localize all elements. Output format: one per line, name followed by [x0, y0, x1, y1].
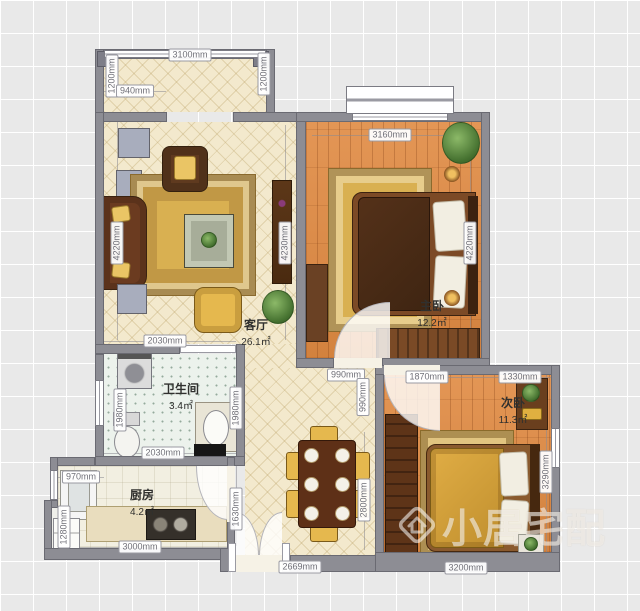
- wall: [296, 112, 306, 368]
- second-bed-quilt: [430, 448, 504, 548]
- side-table-icon: [117, 284, 147, 314]
- bay-window: [346, 86, 454, 114]
- room-label: 客厅26.1㎡: [241, 316, 270, 348]
- room-label: 次卧11.3㎡: [499, 394, 528, 426]
- plate-icon: [335, 506, 350, 521]
- dimension-label: 1980mm: [230, 386, 243, 429]
- dimension-label: 4230mm: [279, 221, 292, 264]
- wall: [296, 358, 334, 368]
- entry-opening: [236, 555, 282, 572]
- dimension-label: 970mm: [62, 471, 100, 484]
- room-area: 3.4㎡: [163, 397, 199, 412]
- cabinet-icon: [118, 128, 150, 158]
- wall: [95, 112, 167, 122]
- room-name: 次卧: [499, 394, 528, 411]
- room-name: 客厅: [241, 316, 270, 333]
- wall: [481, 112, 490, 374]
- room-area: 26.1㎡: [241, 333, 270, 348]
- dimension-label: 3000mm: [118, 541, 161, 554]
- dimension-label: 1630mm: [230, 487, 243, 530]
- dimension-label: 940mm: [116, 85, 154, 98]
- chaise-icon: [194, 287, 242, 333]
- dimension-label: 2669mm: [278, 561, 321, 574]
- floor-plan: 3100mm1200mm1200mm940mm4220mm4230mm3160m…: [0, 0, 640, 611]
- room-area: 12.2㎡: [417, 314, 446, 329]
- wall: [375, 365, 384, 572]
- dimension-label: 2800mm: [358, 478, 371, 521]
- entry-door-jamb: [228, 543, 236, 572]
- room-name: 卫生间: [163, 380, 199, 397]
- room-area: 4.2㎡: [130, 503, 154, 518]
- washing-machine-icon: [117, 352, 152, 389]
- dimension-label: 990mm: [357, 378, 370, 416]
- dimension-label: 1870mm: [405, 371, 448, 384]
- master-window: [352, 113, 448, 121]
- plate-icon: [335, 448, 350, 463]
- dimension-label: 3100mm: [168, 49, 211, 62]
- dimension-label: 2030mm: [141, 447, 184, 460]
- second-wardrobe-icon: [385, 414, 418, 558]
- bathroom-door-leaf: [180, 345, 236, 353]
- room-label: 主卧12.2㎡: [417, 297, 446, 329]
- master-wardrobe-icon: [376, 328, 480, 360]
- dimension-label: 1980mm: [114, 388, 127, 431]
- plate-icon: [304, 477, 319, 492]
- dresser-icon: [306, 264, 328, 342]
- plate-icon: [304, 506, 319, 521]
- dimension-label: 3290mm: [540, 450, 553, 493]
- dimension-label: 3200mm: [444, 562, 487, 575]
- dimension-label: 3160mm: [368, 129, 411, 142]
- room-area: 11.3㎡: [499, 411, 528, 426]
- plate-icon: [304, 448, 319, 463]
- master-bed-quilt: [358, 197, 430, 311]
- dimension-label: 1330mm: [498, 371, 541, 384]
- room-name: 主卧: [417, 297, 446, 314]
- table-plant-icon: [201, 232, 217, 248]
- pillow-icon: [499, 451, 529, 496]
- dimension-label: 1200mm: [258, 52, 271, 95]
- nightstand-plant-icon: [524, 537, 538, 551]
- master-door-opening: [334, 358, 382, 368]
- dimension-label: 1280mm: [58, 505, 71, 548]
- room-name: 厨房: [130, 486, 154, 503]
- dimension-label: 4220mm: [111, 221, 124, 264]
- sofa-pillow: [111, 205, 131, 223]
- pillow-icon: [432, 200, 467, 252]
- bathroom-window: [95, 380, 104, 426]
- wall-lamp-icon: [444, 166, 460, 182]
- dimension-label: 4220mm: [464, 221, 477, 264]
- sink-icon: [203, 410, 229, 446]
- plant-icon: [442, 122, 480, 164]
- plate-icon: [335, 477, 350, 492]
- room-label: 卫生间3.4㎡: [163, 380, 199, 412]
- kitchen-window: [50, 470, 58, 500]
- wall: [95, 112, 104, 354]
- room-label: 厨房4.2㎡: [130, 486, 154, 518]
- dimension-label: 2030mm: [143, 335, 186, 348]
- armchair-cushion: [174, 156, 196, 180]
